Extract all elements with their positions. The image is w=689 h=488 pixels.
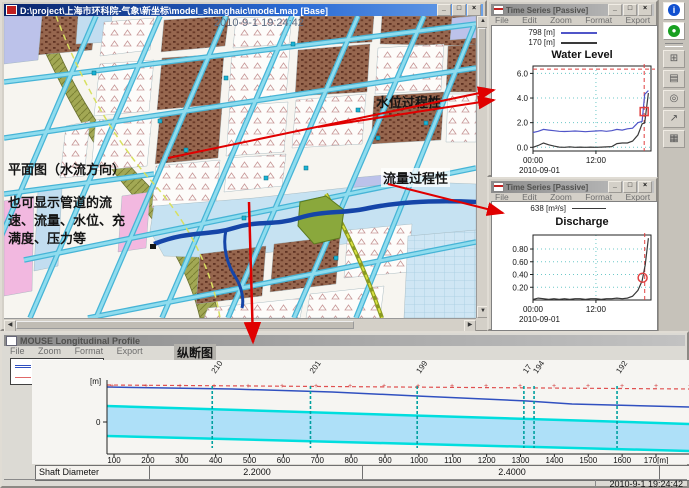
svg-text:192: 192: [614, 360, 629, 375]
maximize-button[interactable]: □: [452, 4, 466, 16]
svg-text:199: 199: [414, 360, 429, 375]
ts2-chart-title: Discharge: [512, 216, 652, 228]
svg-text:700: 700: [311, 456, 325, 464]
map-hscrollbar[interactable]: ◀ ▶: [4, 318, 476, 331]
profile-window: MOUSE Longitudinal Profile File Zoom For…: [0, 331, 689, 488]
svg-text:6.0: 6.0: [517, 69, 529, 78]
menu-file[interactable]: File: [495, 15, 509, 25]
globe-icon[interactable]: ◎: [663, 90, 685, 108]
timeseries-icon: [493, 5, 504, 15]
profile-titlebar[interactable]: MOUSE Longitudinal Profile: [4, 335, 685, 346]
svg-text:201: 201: [308, 360, 323, 375]
svg-text:+: +: [348, 383, 352, 390]
right-toolbar: i ● ⊞ ▤ ◎ ↗ ▦: [658, 0, 689, 331]
ts2-title: Time Series [Passive]: [506, 183, 588, 192]
legend-line-black: [561, 42, 597, 44]
svg-text:1400: 1400: [545, 456, 563, 464]
document-icon[interactable]: ▤: [663, 70, 685, 88]
close-button[interactable]: ×: [467, 4, 481, 16]
svg-text:100: 100: [107, 456, 121, 464]
svg-text:+: +: [552, 383, 556, 390]
application-screen: D:\project\上海市环科院-气象\新坐标\model_shanghaic…: [0, 0, 689, 488]
ts1-legend-row-2: 170 [m]: [515, 38, 597, 47]
menu-file[interactable]: File: [10, 346, 25, 356]
ts1-legend-row-1: 798 [m]: [515, 28, 597, 37]
svg-text:170[m]: 170[m]: [644, 456, 668, 464]
svg-text:+: +: [416, 383, 420, 390]
toolbar-separator: [665, 43, 683, 47]
ts2-legend-row-1: 638 [m³/s]: [510, 204, 606, 213]
scroll-corner: [476, 318, 487, 330]
svg-text:12:00: 12:00: [586, 156, 607, 165]
svg-text:+: +: [280, 383, 284, 390]
svg-text:400: 400: [209, 456, 223, 464]
window-icon[interactable]: ⊞: [663, 50, 685, 68]
annotation-plan-view: 平面图（水流方向）: [8, 159, 125, 178]
svg-text:200: 200: [141, 456, 155, 464]
svg-text:+: +: [110, 383, 114, 390]
water-level-line: [107, 387, 689, 407]
annotation-discharge-process: 流量过程性: [381, 168, 450, 187]
svg-text:+: +: [314, 383, 318, 390]
svg-text:2.0: 2.0: [517, 119, 529, 128]
map-datetime-overlay: 2010-9-1 19:24:42: [214, 17, 304, 29]
map-window-titlebar[interactable]: D:\project\上海市环科院-气象\新坐标\model_shanghaic…: [4, 4, 483, 16]
svg-text:+: +: [212, 383, 216, 390]
annotation-pipe-info-1: 也可显示管道的流: [8, 192, 112, 211]
map-window: D:\project\上海市环科院-气象\新坐标\model_shanghaic…: [0, 0, 487, 331]
svg-text:0.40: 0.40: [512, 271, 528, 280]
ts1-chart-title: Water Level: [512, 49, 652, 61]
menu-edit[interactable]: Edit: [522, 15, 537, 25]
profile-title: MOUSE Longitudinal Profile: [20, 336, 140, 346]
menu-format[interactable]: Format: [75, 346, 104, 356]
svg-text:2010-09-01: 2010-09-01: [519, 315, 560, 324]
y-axis-unit: [m]: [90, 377, 101, 386]
water-level-window: Time Series [Passive] _ □ × File Edit Zo…: [487, 0, 658, 177]
legend-line-black: [572, 208, 606, 209]
profile-icon: [6, 336, 17, 346]
annotation-pipe-info-2: 速、流量、水位、充: [8, 210, 125, 229]
svg-text:1100: 1100: [444, 456, 462, 464]
legend-line-red: [15, 377, 31, 378]
svg-text:1600: 1600: [613, 456, 631, 464]
svg-text:+: +: [586, 383, 590, 390]
svg-text:+: +: [246, 383, 250, 390]
trend-icon[interactable]: ↗: [663, 110, 685, 128]
svg-text:00:00: 00:00: [523, 305, 544, 314]
annotation-water-level-process: 水位过程性: [376, 92, 441, 111]
longitudinal-profile-chart: [m] 0 1002003004005006007008009001000110…: [32, 360, 689, 464]
y-axis-zero: 0: [96, 418, 101, 427]
svg-text:1500: 1500: [579, 456, 597, 464]
svg-text:0.60: 0.60: [512, 258, 528, 267]
minimize-button[interactable]: _: [437, 4, 451, 16]
menu-zoom[interactable]: Zoom: [38, 346, 61, 356]
menu-export[interactable]: Export: [117, 346, 143, 356]
annotation-pipe-info-3: 满度、压力等: [8, 228, 86, 247]
menu-export[interactable]: Export: [626, 15, 651, 25]
svg-text:0.20: 0.20: [512, 283, 528, 292]
svg-text:+: +: [450, 383, 454, 390]
svg-text:0.80: 0.80: [512, 245, 528, 254]
svg-text:12:00: 12:00: [586, 305, 607, 314]
svg-text:+: +: [484, 383, 488, 390]
status-datetime: 2010-9-1 19:24:42: [595, 480, 685, 488]
svg-text:500: 500: [243, 456, 257, 464]
svg-text:00:00: 00:00: [523, 156, 544, 165]
svg-text:+: +: [144, 383, 148, 390]
legend-line-blue: [15, 365, 31, 368]
svg-text:194: 194: [531, 360, 546, 375]
svg-text:1200: 1200: [478, 456, 496, 464]
profile-menubar: File Zoom Format Export: [10, 346, 154, 356]
menu-format[interactable]: Format: [585, 15, 612, 25]
svg-text:0.0: 0.0: [517, 143, 529, 152]
svg-text:+: +: [620, 383, 624, 390]
profile-statusbar: 2010-9-1 19:24:42: [4, 479, 687, 488]
svg-text:1000: 1000: [410, 456, 428, 464]
svg-text:+: +: [518, 383, 522, 390]
map-window-title: D:\project\上海市环科院-气象\新坐标\model_shanghaic…: [20, 4, 328, 16]
legend-line-blue: [561, 32, 597, 34]
svg-text:4.0: 4.0: [517, 94, 529, 103]
ts1-title: Time Series [Passive]: [506, 6, 588, 15]
svg-text:2010-09-01: 2010-09-01: [519, 166, 560, 175]
svg-text:+: +: [382, 383, 386, 390]
grid-icon[interactable]: ▦: [663, 130, 685, 148]
svg-text:1300: 1300: [512, 456, 530, 464]
info-icon[interactable]: i: [663, 2, 685, 20]
svg-text:600: 600: [277, 456, 291, 464]
timeseries-icon: [493, 182, 504, 192]
app-icon: [6, 5, 17, 15]
svg-text:800: 800: [344, 456, 358, 464]
svg-text:900: 900: [378, 456, 392, 464]
discharge-window: Time Series [Passive] _ □ × File Edit Zo…: [487, 177, 658, 331]
svg-text:210: 210: [210, 360, 225, 375]
svg-text:+: +: [654, 383, 658, 390]
svg-text:+: +: [178, 383, 182, 390]
menu-zoom[interactable]: Zoom: [550, 15, 572, 25]
svg-text:300: 300: [175, 456, 189, 464]
status-ok-icon[interactable]: ●: [663, 22, 685, 40]
